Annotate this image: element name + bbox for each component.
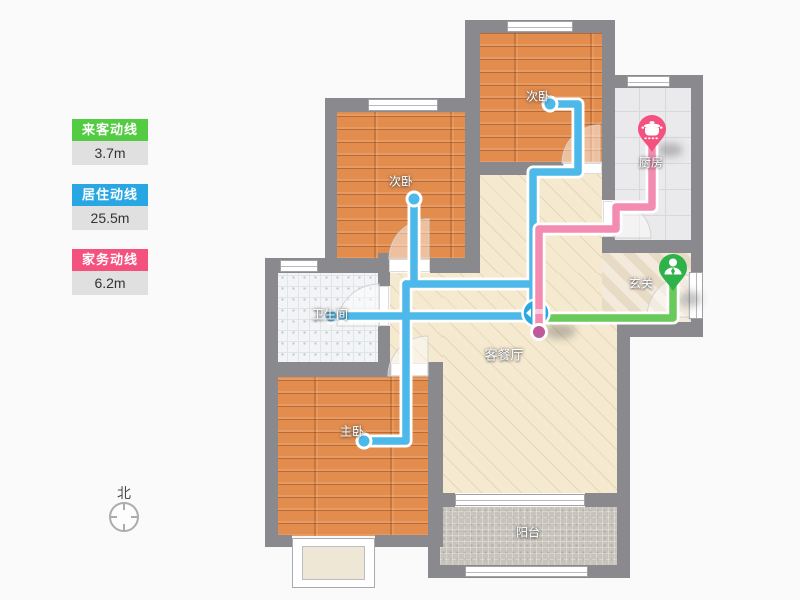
wall [617, 322, 630, 578]
wall [265, 362, 391, 377]
room-label-living: 客餐厅 [484, 345, 523, 364]
window [368, 99, 438, 111]
room-label-bathroom: 卫生间 [312, 306, 348, 323]
entrance-door [689, 272, 703, 319]
floorplan-page: 来客动线 3.7m 居住动线 25.5m 家务动线 6.2m [0, 0, 800, 600]
door-opening [391, 363, 428, 376]
window [507, 21, 573, 32]
guest-route-label: 来客动线 [72, 119, 148, 141]
room-label-balcony: 阳台 [516, 524, 540, 541]
room-label-bedroom2-top: 次卧 [526, 88, 550, 105]
room-label-master: 主卧 [340, 423, 364, 440]
compass-north-label: 北 [117, 485, 131, 501]
door-opening [389, 259, 430, 272]
wall [691, 253, 703, 273]
corridor-floor [390, 273, 443, 363]
compass-dial [110, 503, 138, 531]
chore-route-label: 家务动线 [72, 249, 148, 271]
wall [265, 535, 292, 547]
living-floor-upper [480, 162, 602, 274]
wall [465, 20, 480, 273]
wall [618, 322, 703, 337]
wall [265, 258, 278, 547]
chore-route-distance: 6.2m [72, 271, 148, 295]
door-opening [563, 163, 602, 174]
room-label-kitchen: 厨房 [639, 154, 663, 171]
master-floor [277, 376, 429, 536]
legend-item-guest: 来客动线 3.7m [72, 119, 148, 165]
living-route-label: 居住动线 [72, 184, 148, 206]
sliding-door [455, 494, 585, 506]
wall [325, 98, 337, 260]
room-label-foyer: 玄关 [629, 275, 653, 292]
bay-window-inner [302, 546, 365, 580]
route-legend: 来客动线 3.7m 居住动线 25.5m 家务动线 6.2m [72, 119, 148, 314]
window [627, 76, 670, 87]
wall [602, 240, 703, 253]
guest-route-distance: 3.7m [72, 141, 148, 165]
wall [465, 162, 563, 175]
balcony-window [465, 566, 588, 577]
wall [378, 326, 390, 362]
door-opening [603, 201, 614, 237]
window [280, 260, 318, 272]
wall [691, 75, 703, 253]
legend-item-chore: 家务动线 6.2m [72, 249, 148, 295]
wall [430, 258, 465, 273]
wall [585, 493, 617, 507]
legend-item-living: 居住动线 25.5m [72, 184, 148, 230]
room-label-bedroom2-left: 次卧 [389, 173, 413, 190]
living-route-distance: 25.5m [72, 206, 148, 230]
door-opening [379, 286, 389, 326]
living-floor-main [443, 273, 617, 493]
wall [602, 20, 615, 200]
compass: 北 [94, 480, 154, 540]
